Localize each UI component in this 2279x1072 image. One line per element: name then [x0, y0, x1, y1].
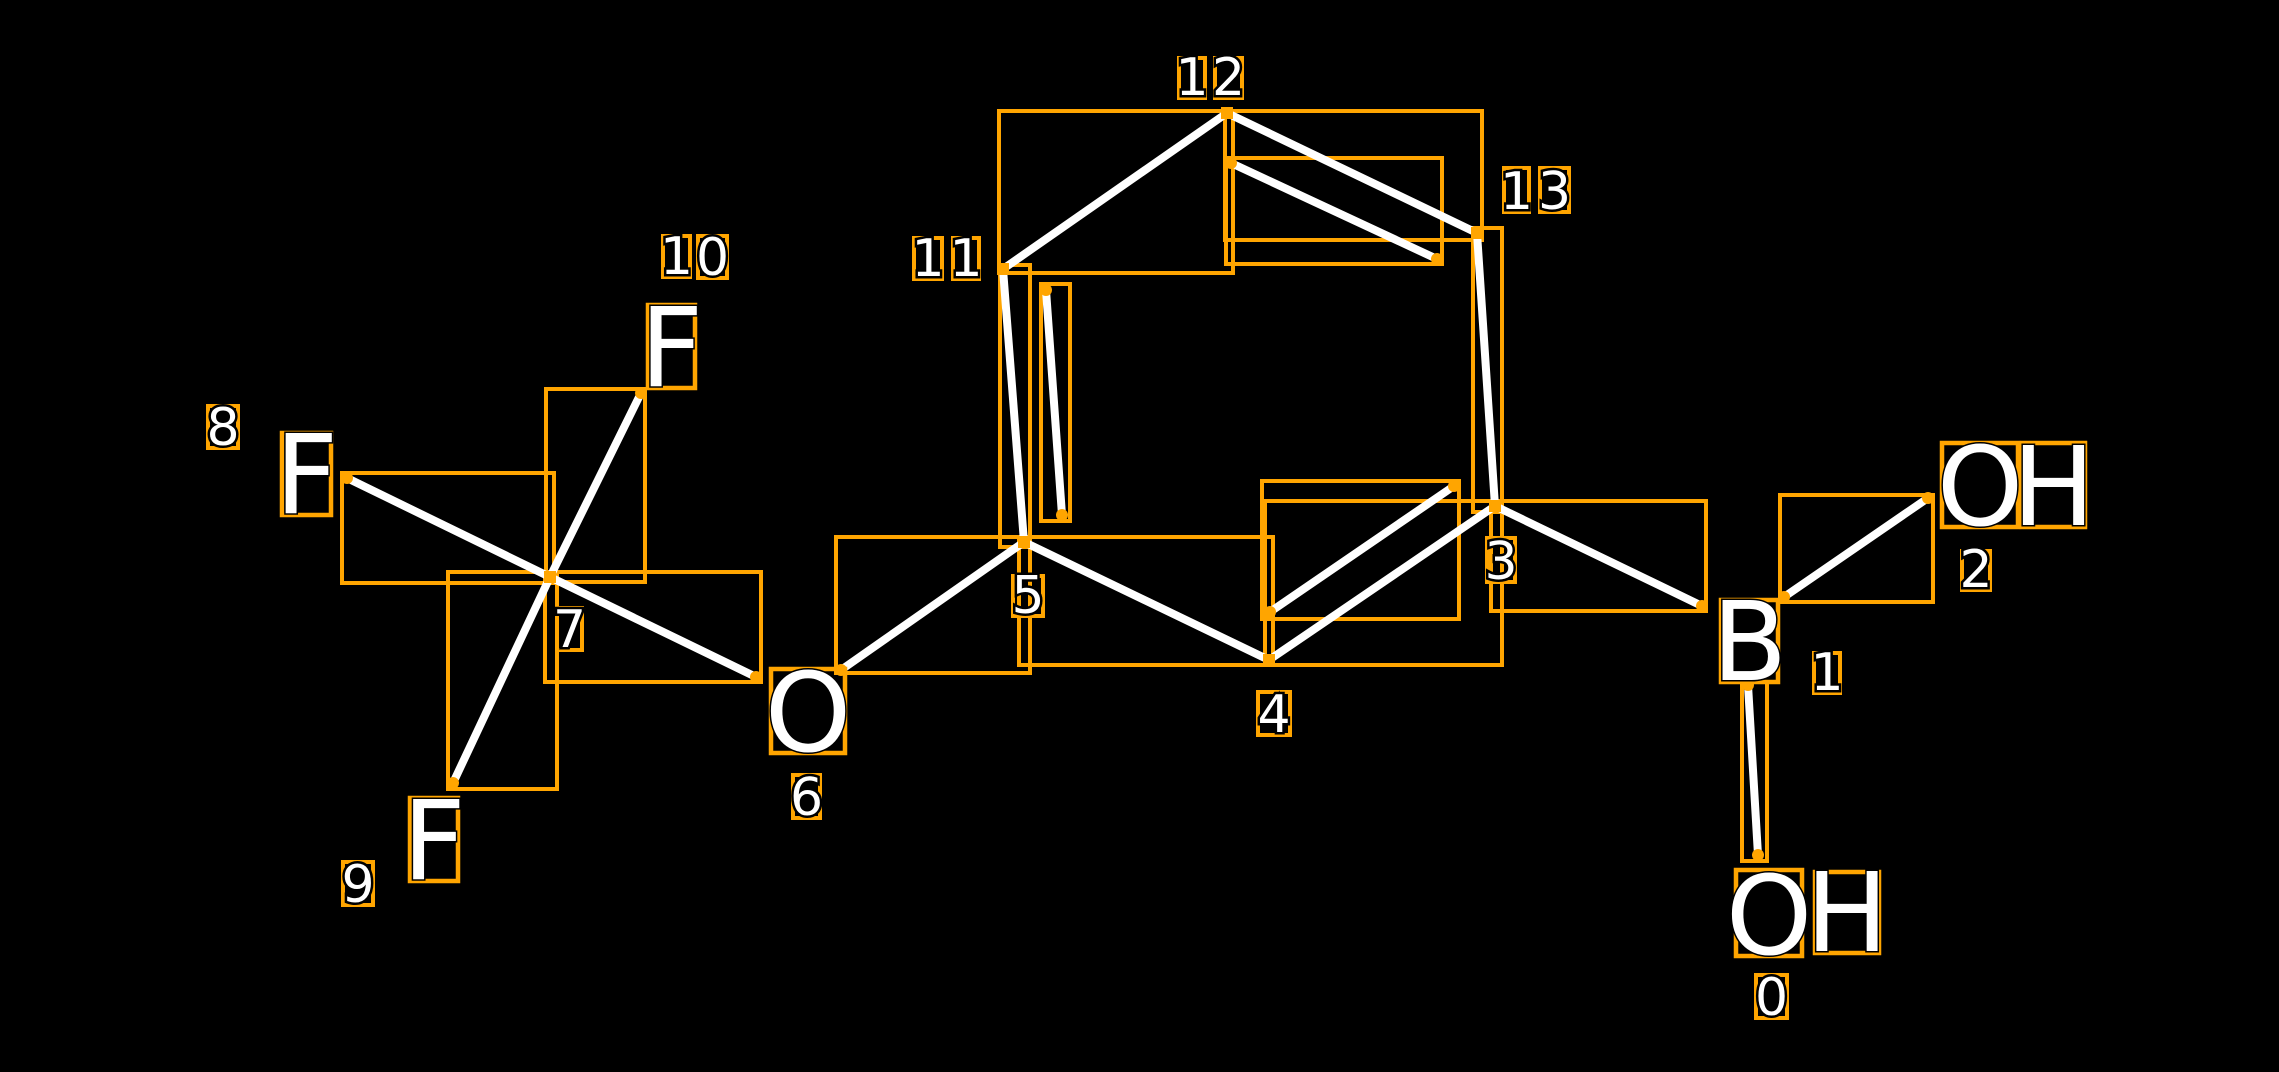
index-label-5-digit-0: 5 — [1011, 566, 1044, 626]
atom-letter-F-10-0: F — [640, 284, 703, 412]
vertex-11-marker — [997, 263, 1009, 275]
molecule-structure-svg: OHBOHOFFF012345678910111213 — [0, 0, 2279, 1072]
index-label-12-digit-0: 1 — [1175, 48, 1208, 108]
bond-C7-F9 — [453, 577, 550, 783]
bond-C3-B1 — [1495, 506, 1702, 606]
atom-letter-OH-2-0: O — [1937, 423, 2024, 551]
bond-C13-C3 — [1477, 233, 1495, 506]
index-label-10-digit-0: 1 — [660, 227, 693, 287]
atom-letter-F-9-0: F — [402, 777, 465, 905]
bond-C7-F8 — [347, 478, 550, 577]
bond-C11-C12 — [1003, 113, 1227, 269]
molecule-annotation-canvas: OHBOHOFFF012345678910111213 — [0, 0, 2279, 1072]
atom-letter-O-6-0: O — [765, 649, 852, 777]
index-label-7-digit-0: 7 — [553, 600, 586, 660]
bond-endpoint-dot-12 — [1448, 480, 1460, 492]
vertex-3-marker — [1489, 500, 1501, 512]
vertex-13-marker — [1471, 227, 1483, 239]
atom-letter-F-8-0: F — [275, 411, 338, 539]
bond-endpoint-dot-5 — [1696, 600, 1708, 612]
bond-C5-C11 — [1003, 269, 1024, 542]
index-label-10-digit-1: 0 — [696, 228, 729, 288]
bond-endpoint-dot-2 — [341, 472, 353, 484]
index-label-3-digit-0: 3 — [1484, 532, 1517, 592]
bond-C12-C13-inner — [1231, 163, 1437, 259]
index-label-0-digit-0: 0 — [1755, 968, 1788, 1028]
index-label-2-digit-0: 2 — [1959, 540, 1992, 600]
index-label-9-digit-0: 9 — [341, 855, 374, 915]
bond-endpoint-dot-14 — [1040, 284, 1052, 296]
bond-C5-C11-inner — [1046, 290, 1062, 515]
vertex-4-marker — [1263, 654, 1275, 666]
bond-endpoint-dot-10 — [1225, 157, 1237, 169]
bond-endpoint-dot-7 — [1922, 492, 1934, 504]
bond-endpoint-dot-13 — [1264, 606, 1276, 618]
vertex-12-marker — [1221, 107, 1233, 119]
bond-B1-OH0 — [1748, 685, 1758, 855]
vertex-5-marker — [1018, 536, 1030, 548]
index-label-4-digit-0: 4 — [1257, 685, 1290, 745]
index-label-1-digit-0: 1 — [1810, 643, 1843, 703]
index-label-8-digit-0: 8 — [206, 398, 239, 458]
index-label-12-digit-1: 2 — [1212, 48, 1245, 108]
atom-letter-OH-2-1: H — [2012, 423, 2095, 551]
atom-letter-OH-0-1: H — [1806, 849, 1889, 977]
bond-C3-C4 — [1269, 506, 1495, 660]
index-label-11-digit-0: 1 — [911, 229, 944, 289]
bond-B1-OH2 — [1784, 498, 1928, 597]
index-label-13-digit-1: 3 — [1538, 162, 1571, 222]
index-label-13-digit-0: 1 — [1500, 162, 1533, 222]
bond-endpoint-dot-15 — [1056, 509, 1068, 521]
bond-endpoint-dot-11 — [1431, 253, 1443, 265]
bond-C4-C5 — [1024, 542, 1269, 660]
atom-letter-OH-0-0: O — [1726, 852, 1813, 980]
bond-C5-O6 — [841, 542, 1024, 670]
index-label-6-digit-0: 6 — [790, 768, 823, 828]
bond-C7-F10 — [550, 393, 641, 577]
vertex-7-marker — [544, 571, 556, 583]
bond-endpoint-dot-1 — [750, 671, 762, 683]
atom-letter-B-1-0: B — [1712, 578, 1787, 706]
index-label-11-digit-1: 1 — [949, 229, 982, 289]
